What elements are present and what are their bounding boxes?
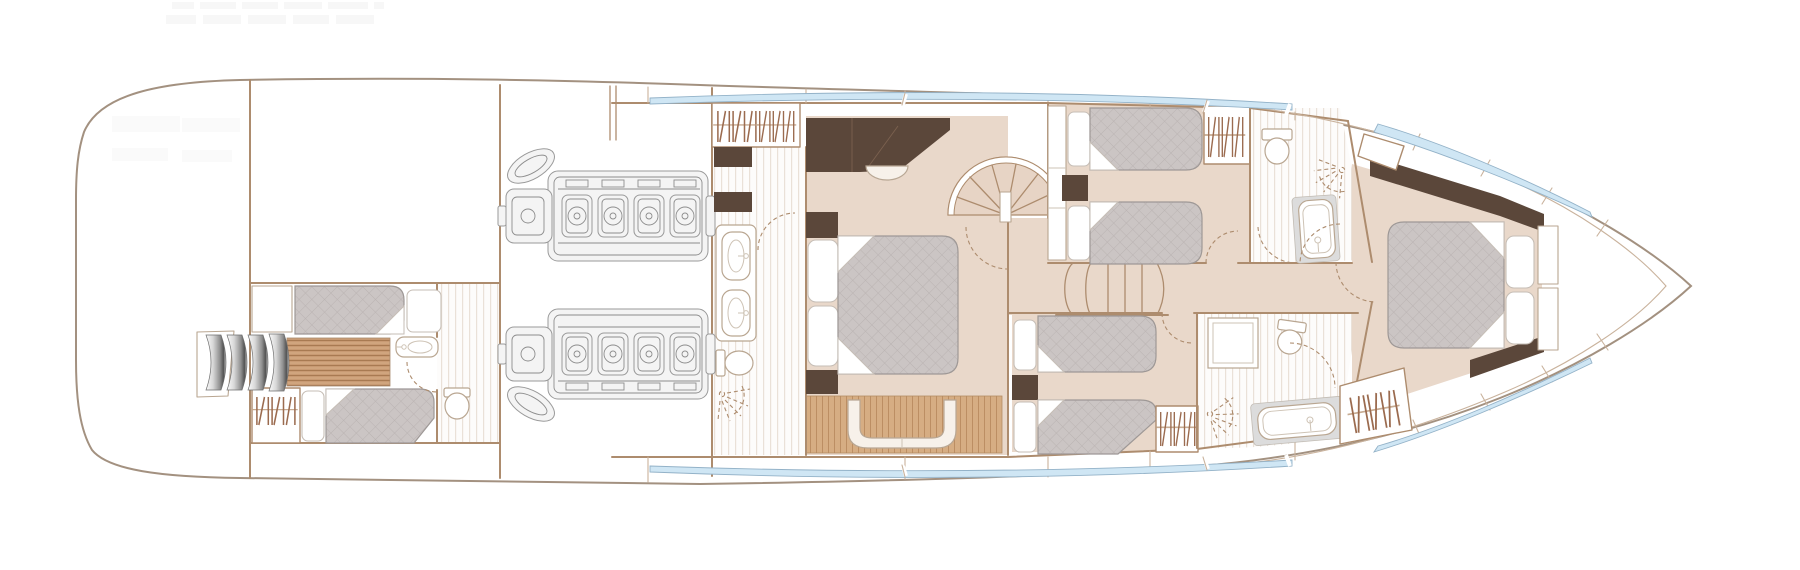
vip-shelf-2 bbox=[1538, 288, 1558, 350]
stbd-twin-pillow-2 bbox=[1014, 402, 1036, 452]
crew-pillow-lower bbox=[302, 391, 324, 441]
yacht-deck-plan bbox=[0, 0, 1800, 570]
transom-steps bbox=[197, 331, 289, 397]
crew-cupboard bbox=[252, 286, 292, 332]
vip-bed bbox=[1388, 222, 1504, 348]
stbd-bath-tub bbox=[1250, 396, 1345, 446]
crew-toilet bbox=[444, 388, 470, 419]
master-pillow-2 bbox=[808, 306, 838, 366]
port-bath-tub bbox=[1292, 195, 1340, 264]
crew-sink bbox=[396, 337, 438, 357]
vip-pillow-2 bbox=[1506, 292, 1534, 344]
port-twin-pillow-2 bbox=[1068, 206, 1090, 260]
port-twin-pillow-1 bbox=[1068, 112, 1090, 166]
stbd-twin-pillow-1 bbox=[1014, 320, 1036, 370]
master-toilet bbox=[716, 350, 753, 376]
twin-sink-vanity bbox=[716, 225, 756, 341]
deck-plan-page bbox=[0, 0, 1800, 570]
corridor-floor bbox=[1008, 218, 1048, 315]
crew-corridor-teak-floor bbox=[287, 338, 390, 386]
vip-pillow-1 bbox=[1506, 236, 1534, 288]
crew-pillow-upper bbox=[407, 290, 441, 332]
master-bed bbox=[838, 236, 958, 374]
bedside-stbd bbox=[806, 370, 838, 394]
stbd-bath-shower-cubicle bbox=[1208, 318, 1258, 368]
bedside-port bbox=[806, 212, 838, 238]
port-twin-nightstand bbox=[1062, 175, 1088, 201]
vip-shelf-1 bbox=[1538, 226, 1558, 284]
corridor-floor-2 bbox=[1048, 263, 1372, 315]
stbd-twin-nightstand bbox=[1012, 375, 1038, 400]
crew-bathroom-floor bbox=[437, 283, 500, 443]
ghost-watermark bbox=[166, 2, 384, 24]
master-pillow bbox=[808, 240, 838, 302]
